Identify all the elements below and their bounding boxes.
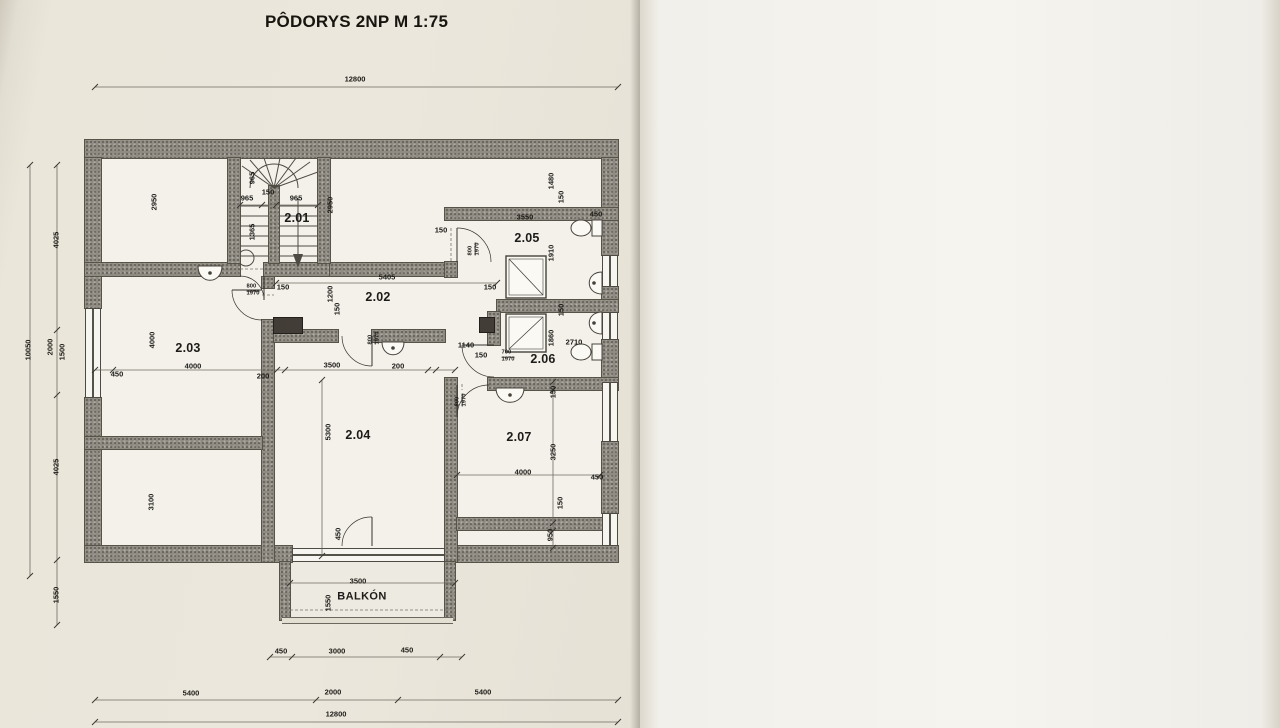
dimension-label: 1500 — [58, 344, 66, 361]
dimension-label: 8001970 — [469, 243, 482, 256]
dimension-label: 150 — [277, 283, 290, 291]
dimension-label: 2000 — [325, 688, 342, 696]
dimension-label: 5400 — [183, 689, 200, 697]
legend-page: LEGENDA MIESTNOSTÍ Č.M.NÁZOV MIESTNOSTIP… — [640, 0, 1280, 728]
dimension-label: 1550 — [52, 587, 60, 604]
dimension-label: 1140 — [458, 341, 474, 349]
room-label: 2.07 — [506, 431, 531, 444]
dimension-label: 8001970 — [247, 285, 260, 298]
room-label: 2.03 — [175, 342, 200, 355]
dimension-label: 200 — [392, 362, 405, 370]
dimension-label: 4025 — [52, 232, 60, 249]
dimension-label: 4000 — [148, 332, 156, 349]
dimension-label: 150 — [557, 191, 565, 204]
dimension-label: 965 — [241, 194, 254, 202]
dimension-label: 150 — [475, 351, 488, 359]
dimension-label: 200 — [257, 372, 270, 380]
dimension-label: 4025 — [52, 459, 60, 476]
room-label: 2.06 — [530, 353, 555, 366]
dimension-label: 450 — [334, 528, 342, 541]
dimension-label: 3250 — [549, 444, 557, 461]
dimension-label: 450 — [401, 646, 414, 654]
dimension-label: 2950 — [150, 194, 158, 211]
dimension-label: 150 — [557, 304, 565, 317]
dimension-label: 450 — [275, 647, 288, 655]
dimension-label: 5300 — [324, 424, 332, 441]
dimension-label: 1860 — [547, 330, 555, 347]
dimension-label: 150 — [262, 188, 275, 196]
dimension-label: 950 — [546, 529, 554, 542]
room-label: 2.02 — [365, 291, 390, 304]
dimension-label: 450 — [590, 210, 603, 218]
dimension-label: 3500 — [350, 577, 367, 585]
dimension-label: 450 — [111, 370, 124, 378]
dimension-label: 7001970 — [502, 351, 515, 364]
dimension-label: 965 — [248, 172, 256, 185]
dimension-label: 2950 — [326, 197, 334, 214]
dimension-label: 3000 — [329, 647, 346, 655]
dimension-label: 3500 — [324, 361, 341, 369]
plan-symbols — [0, 0, 700, 728]
dimension-label: 8001970 — [369, 332, 382, 345]
plan-page: PÔDORYS 2NP M 1:75 — [0, 0, 640, 728]
dimension-label: 4000 — [515, 468, 532, 476]
dimension-label: 1910 — [547, 245, 555, 262]
room-label: BALKÓN — [337, 592, 386, 603]
dimension-label: 150 — [556, 497, 564, 510]
dimension-label: 10050 — [24, 340, 32, 361]
dimension-label: 1480 — [547, 173, 555, 190]
dimension-label: 150 — [435, 226, 448, 234]
dimension-label: 2000 — [46, 339, 54, 356]
dimension-label: 3100 — [147, 494, 155, 511]
dimension-label: 12800 — [326, 710, 347, 718]
dimension-label: 150 — [549, 386, 557, 399]
dimension-label: 12800 — [345, 75, 366, 83]
dimension-label: 2710 — [566, 338, 583, 346]
dimension-label: 1200 — [326, 286, 334, 303]
dimension-label: 1550 — [324, 595, 332, 612]
dimension-label: 150 — [333, 303, 341, 316]
scanned-floor-plan-document: { "plan": { "title": "PÔDORYS 2NP M 1:75… — [0, 0, 1280, 728]
dimension-label: 450 — [591, 473, 604, 481]
room-label: 2.05 — [514, 232, 539, 245]
dimension-label: 150 — [484, 283, 497, 291]
dimension-label: 8001970 — [456, 394, 469, 407]
dimension-label: 3550 — [517, 213, 534, 221]
dimension-label: 1365 — [248, 224, 256, 241]
dimension-label: 4000 — [185, 362, 202, 370]
dimension-label: 5400 — [475, 688, 492, 696]
dimension-label: 965 — [290, 194, 303, 202]
dimension-label: 5405 — [379, 273, 396, 281]
room-label: 2.01 — [284, 212, 309, 225]
room-label: 2.04 — [345, 429, 370, 442]
